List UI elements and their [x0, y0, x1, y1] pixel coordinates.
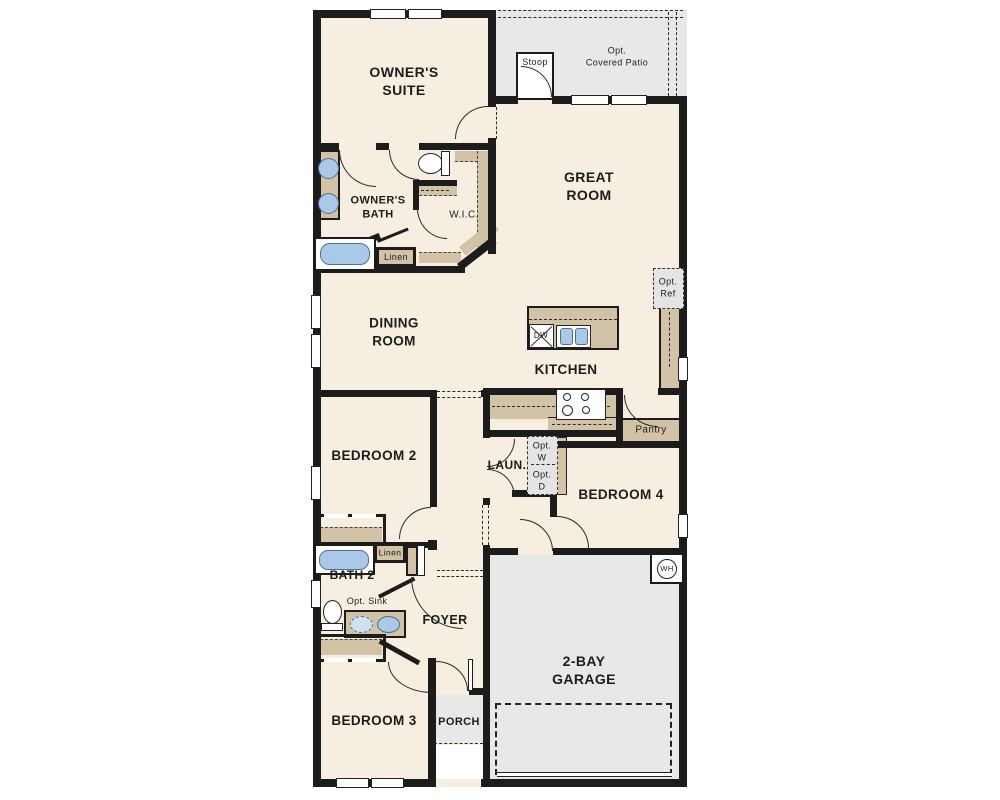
closet-opening [352, 658, 376, 662]
wall [481, 779, 687, 787]
door-opening [488, 107, 496, 138]
island-counter-dash [529, 319, 617, 320]
closet-opening [324, 658, 348, 662]
wall [413, 180, 457, 186]
counter-dash [669, 312, 670, 367]
toilet-tank [321, 623, 343, 631]
window [571, 95, 609, 105]
stove-icon [556, 389, 606, 420]
floor-plan: OWNER'S SUITE Stoop Opt. Covered Patio G… [0, 0, 1000, 800]
window [611, 95, 647, 105]
room-label-garage: 2-BAY GARAGE [552, 652, 616, 688]
toilet-tank [441, 151, 450, 176]
fixture-label-linen-owners: Linen [384, 252, 408, 264]
room-label-owners-suite: OWNER'S SUITE [369, 63, 438, 99]
porch-dashed-edge [434, 743, 483, 744]
window [311, 580, 321, 608]
bathtub-icon [320, 243, 370, 265]
wall [313, 390, 437, 397]
room-label-great-room: GREAT ROOM [564, 168, 614, 204]
burner [562, 405, 573, 416]
garage-door-dashed-zone [495, 703, 672, 775]
room-label-bedroom4: BEDROOM 4 [578, 486, 663, 504]
window [311, 295, 321, 329]
toilet-room-dash [421, 190, 449, 191]
bathtub-icon [319, 550, 369, 570]
window [371, 778, 404, 788]
cased-opening [437, 570, 483, 571]
wall [550, 441, 687, 448]
door-opening [339, 143, 376, 150]
burner [563, 393, 571, 401]
ceiling-break [496, 107, 497, 139]
room-label-laundry: LAUN. [488, 458, 527, 474]
fixture-label-dishwasher: DW [534, 331, 548, 341]
wic-shelf-bottom [419, 252, 461, 263]
sink-icon [377, 616, 400, 633]
cased-opening [437, 391, 481, 392]
wall [488, 10, 496, 107]
patio-dashed-edge [498, 17, 683, 18]
cased-opening [482, 505, 483, 545]
sink-basin [560, 328, 573, 345]
door-opening [623, 388, 658, 395]
burner [582, 406, 590, 414]
toilet-icon [418, 153, 443, 174]
room-label-bath2: BATH 2 [330, 568, 375, 584]
toilet-room-shelf [419, 186, 457, 196]
fixture-label-opt-ref: Opt. Ref [659, 276, 678, 299]
fixture-label-opt-washer: Opt. W [533, 440, 552, 463]
closet-opening [324, 514, 348, 518]
sink-icon [318, 158, 339, 179]
garage-door-line [497, 772, 672, 777]
sink-basin [575, 328, 588, 345]
cased-opening [437, 397, 481, 398]
window [336, 778, 369, 788]
door-opening [389, 143, 419, 150]
counter-dash [552, 424, 612, 425]
patio-dashed-edge [676, 12, 677, 96]
opt-sink-icon [350, 616, 373, 633]
room-label-bedroom2: BEDROOM 2 [331, 447, 416, 465]
wall [483, 548, 490, 787]
window [678, 514, 688, 538]
washer-dryer-divider [531, 464, 555, 465]
room-label-stoop: Stoop [522, 57, 548, 69]
room-label-foyer: FOYER [422, 612, 467, 628]
wall [430, 397, 437, 507]
wall [658, 388, 687, 395]
exterior-below-porch [430, 745, 483, 779]
room-label-bedroom3: BEDROOM 3 [331, 712, 416, 730]
room-label-wic: W.I.C. [449, 209, 479, 222]
door-opening [430, 507, 437, 540]
room-label-kitchen: KITCHEN [535, 361, 598, 379]
window [370, 9, 406, 19]
window [311, 334, 321, 368]
room-label-dining-room: DINING ROOM [369, 314, 419, 349]
room-label-porch: PORCH [438, 715, 480, 729]
door-leaf [468, 659, 473, 691]
wall [313, 10, 321, 787]
room-label-owners-bath: OWNER'S BATH [351, 194, 406, 223]
window [408, 9, 442, 19]
fixture-label-opt-sink: Opt. Sink [347, 596, 388, 608]
burner [581, 393, 589, 401]
fixture-label-linen-bath2: Linen [379, 547, 402, 558]
room-label-covered-patio: Opt. Covered Patio [586, 45, 648, 68]
patio-dashed-edge [668, 12, 669, 96]
window [311, 466, 321, 500]
window [678, 357, 688, 381]
fixture-label-opt-dryer: Opt. D [533, 469, 552, 492]
room-label-pantry: Pantry [635, 424, 666, 437]
cased-opening-box [417, 545, 425, 576]
toilet-icon [323, 600, 342, 624]
wall [413, 182, 419, 210]
wall [616, 388, 623, 448]
patio-dashed-edge [498, 10, 683, 11]
cased-opening [488, 505, 489, 545]
closet-opening [352, 514, 376, 518]
fixture-label-water-heater: WH [660, 564, 673, 574]
wall [483, 498, 490, 505]
sink-icon [318, 193, 339, 214]
